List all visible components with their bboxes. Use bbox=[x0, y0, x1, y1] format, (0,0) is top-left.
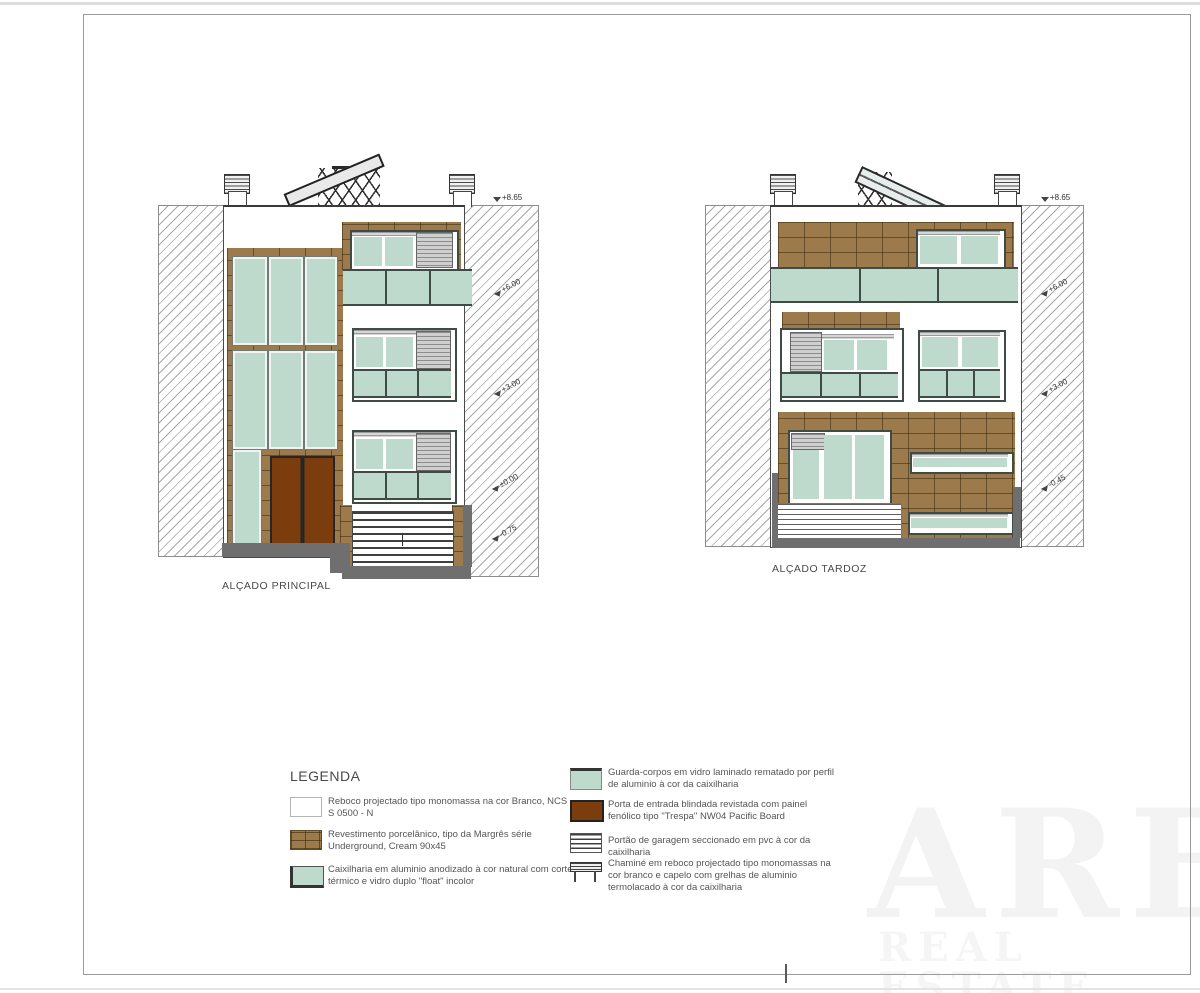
legend-swatch-render-white bbox=[290, 797, 322, 817]
drawing-sheet: ARE REAL ESTATE bbox=[0, 0, 1200, 993]
legend-item-text: Caixilharia em aluminio anodizado à cor … bbox=[328, 864, 578, 888]
slot-window bbox=[908, 512, 1014, 535]
window-group bbox=[916, 229, 1006, 272]
entrance-door bbox=[270, 456, 335, 546]
page-top-strip bbox=[0, 2, 1200, 5]
window-group bbox=[350, 230, 459, 274]
legend-title: LEGENDA bbox=[290, 768, 360, 784]
legend-swatch-glass-teal bbox=[290, 866, 324, 888]
elevation-title: ALÇADO PRINCIPAL bbox=[222, 580, 331, 592]
hatch-wall-left bbox=[705, 205, 772, 547]
legend-item-text: Revestimento porcelânico, tipo da Margrê… bbox=[328, 829, 568, 853]
window bbox=[269, 351, 303, 449]
exterior-steps bbox=[777, 503, 902, 539]
hatch-wall-right bbox=[1020, 205, 1084, 547]
legend-item-text: Chaminé em reboco projectado tipo monoma… bbox=[608, 858, 840, 894]
juliet-balcony-glass bbox=[782, 372, 898, 398]
window bbox=[269, 257, 303, 345]
legend-item-text: Guarda-corpos em vidro laminado rematado… bbox=[608, 767, 836, 791]
window bbox=[233, 351, 267, 449]
legend-swatch-glass-rail bbox=[570, 768, 602, 790]
roller-shutter-box bbox=[416, 433, 451, 471]
juliet-balcony-glass bbox=[354, 369, 451, 398]
center-fold-mark bbox=[785, 964, 787, 983]
level-symbol-icon bbox=[493, 197, 501, 202]
garage-door bbox=[352, 511, 454, 568]
legend-item-text: Porta de entrada blindada revistada com … bbox=[608, 799, 840, 823]
level-marker: +8.65 bbox=[493, 193, 522, 202]
juliet-balcony-glass bbox=[920, 369, 1000, 398]
window-group bbox=[788, 430, 892, 507]
glass-balcony-railing bbox=[771, 267, 1018, 303]
elevation-title: ALÇADO TARDOZ bbox=[772, 563, 867, 575]
slot-window bbox=[910, 452, 1014, 474]
base-wall-stub bbox=[1013, 487, 1021, 538]
window bbox=[233, 450, 261, 546]
legend-swatch-chimney-icon bbox=[570, 860, 600, 884]
window-group bbox=[780, 328, 904, 402]
window-group bbox=[918, 330, 1006, 402]
window bbox=[305, 351, 337, 449]
base-plinth bbox=[222, 543, 334, 557]
roller-shutter-box bbox=[416, 331, 451, 369]
legend-item-text: Portão de garagem seccionado em pvc à co… bbox=[608, 835, 840, 859]
level-marker: +8.65 bbox=[1041, 193, 1070, 202]
window bbox=[305, 257, 337, 345]
legend-swatch-garage-stripes bbox=[570, 833, 602, 853]
base-plinth bbox=[342, 566, 471, 579]
roller-shutter-box bbox=[416, 232, 453, 268]
base-plinth bbox=[772, 538, 1020, 548]
page-bottom-strip bbox=[0, 988, 1200, 990]
base-wall-stub bbox=[463, 505, 472, 567]
legend-swatch-tile-brown bbox=[290, 830, 322, 850]
base-wall-stub bbox=[772, 473, 778, 538]
tile-cladding-panel bbox=[227, 248, 343, 546]
level-symbol-icon bbox=[1041, 197, 1049, 202]
window-group bbox=[352, 430, 457, 504]
glass-balcony-railing bbox=[343, 269, 472, 306]
roller-shutter-box bbox=[790, 332, 822, 372]
window-group bbox=[352, 328, 457, 402]
juliet-balcony-glass bbox=[354, 471, 451, 500]
hatch-wall-left bbox=[158, 205, 225, 557]
roller-shutter-box bbox=[791, 433, 825, 450]
window bbox=[233, 257, 267, 345]
legend-item-text: Reboco projectado tipo monomassa na cor … bbox=[328, 796, 568, 820]
legend-swatch-door-brown bbox=[570, 800, 604, 822]
